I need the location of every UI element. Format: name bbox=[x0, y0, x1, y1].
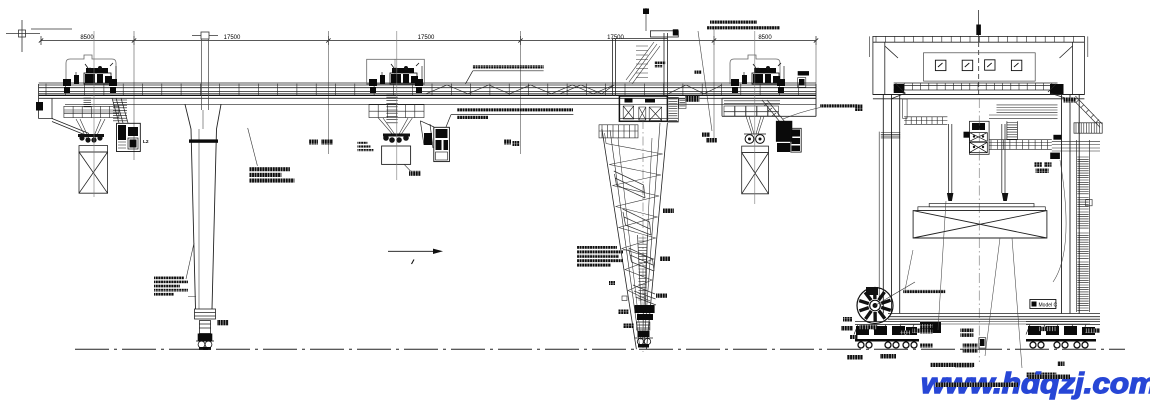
svg-text:8500: 8500 bbox=[758, 35, 772, 41]
svg-text:17500: 17500 bbox=[224, 35, 241, 41]
svg-text:8500: 8500 bbox=[80, 35, 94, 41]
svg-text:17500: 17500 bbox=[418, 35, 435, 41]
svg-text:Model C: Model C bbox=[1039, 303, 1058, 309]
svg-text:L2: L2 bbox=[143, 139, 149, 145]
